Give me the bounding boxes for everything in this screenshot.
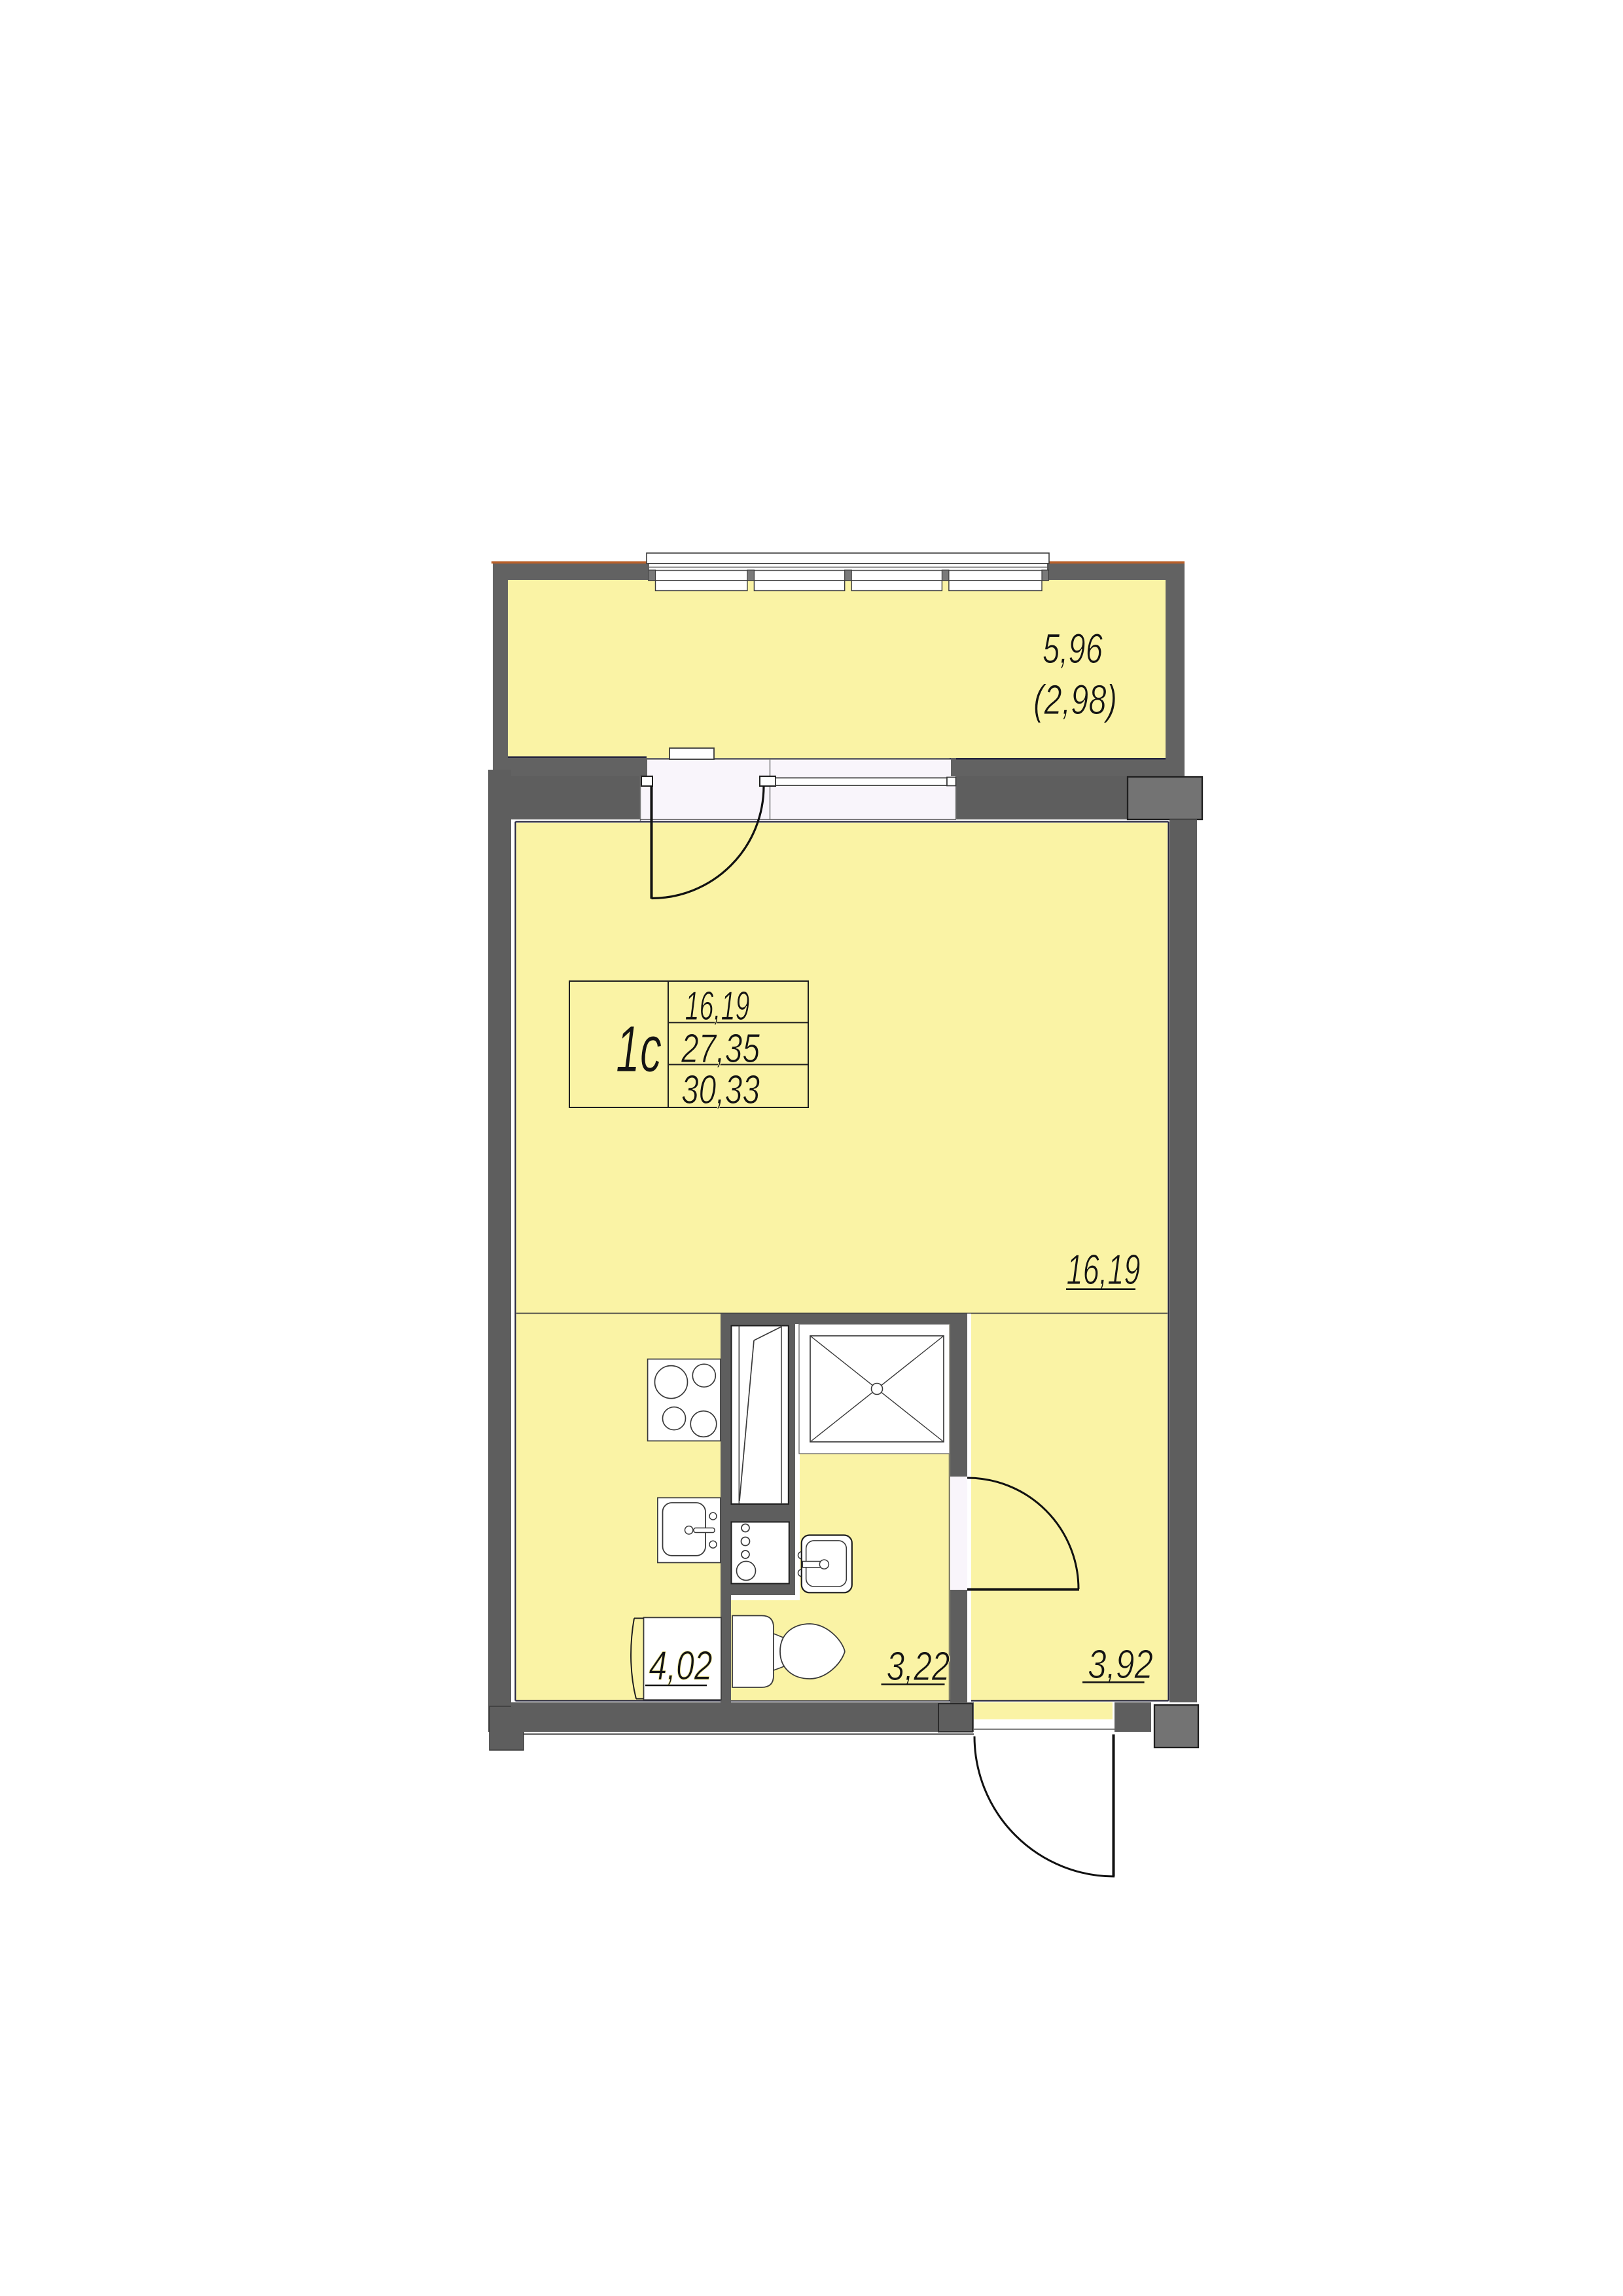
svg-text:5,96: 5,96 <box>1043 625 1103 672</box>
svg-text:1с: 1с <box>616 1013 662 1086</box>
svg-text:(2,98): (2,98) <box>1033 676 1117 723</box>
svg-text:27,35: 27,35 <box>681 1026 760 1071</box>
svg-text:3,22: 3,22 <box>887 1644 950 1689</box>
svg-text:16,19: 16,19 <box>685 984 750 1029</box>
svg-text:3,92: 3,92 <box>1088 1642 1153 1687</box>
svg-text:16,19: 16,19 <box>1067 1246 1141 1293</box>
svg-text:30,33: 30,33 <box>681 1067 760 1113</box>
svg-text:4,02: 4,02 <box>649 1643 713 1689</box>
